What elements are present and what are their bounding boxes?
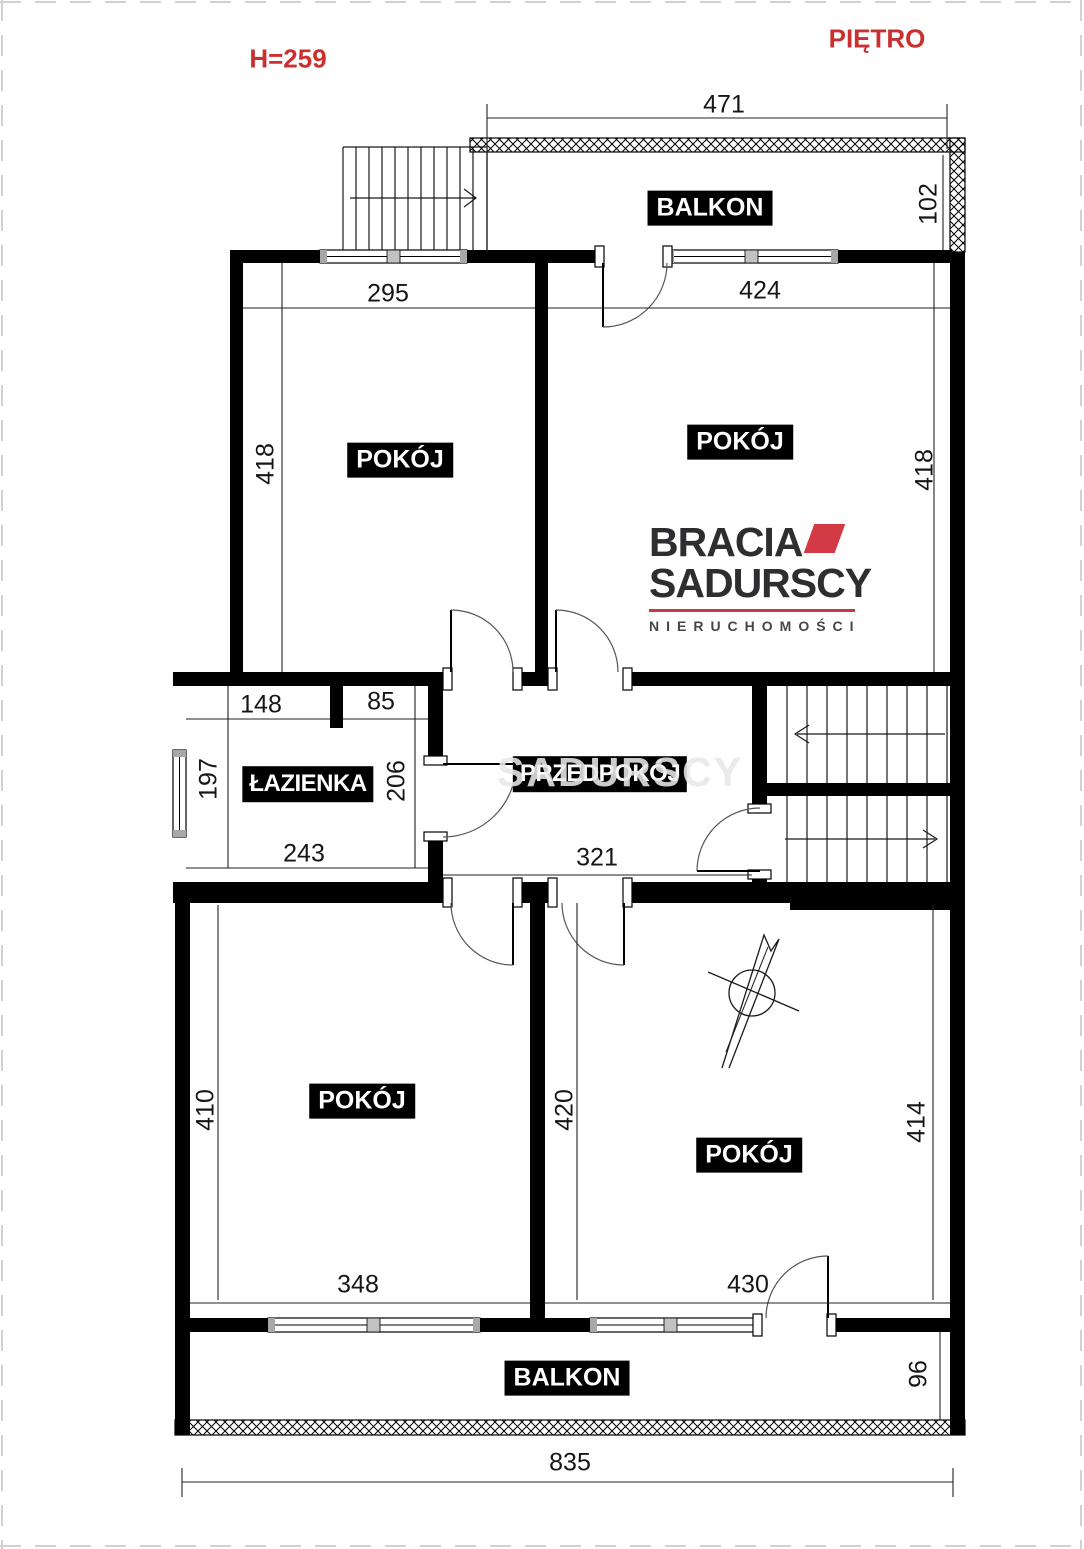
logo-parallelogram-icon (804, 524, 846, 553)
bathroom-label: ŁAZIENKA (242, 766, 373, 802)
dim-bath-width-left: 148 (240, 691, 282, 720)
dim-balcony-top-depth: 102 (915, 183, 944, 225)
room-bottom-right-label: POKÓJ (696, 1138, 802, 1173)
room-top-left-label: POKÓJ (347, 443, 453, 478)
dim-room-bl-height: 410 (192, 1089, 221, 1131)
dim-room-tr-width: 424 (739, 277, 781, 306)
room-bottom-left-label: POKÓJ (309, 1084, 415, 1119)
dim-room-bl-width: 348 (337, 1271, 379, 1300)
dim-total-width: 835 (549, 1449, 591, 1478)
logo-line2: SADURSCY (649, 563, 871, 604)
dim-bath-height-right: 206 (383, 760, 412, 802)
dim-balcony-top-width: 471 (703, 91, 745, 120)
ceiling-height-label: H=259 (249, 44, 326, 75)
logo-word-sadurscy: SADURSCY (649, 563, 871, 604)
logo-underline (649, 609, 855, 612)
dim-balcony-bottom-depth: 96 (905, 1360, 934, 1388)
dim-room-br-width: 430 (727, 1271, 769, 1300)
room-top-right-label: POKÓJ (687, 425, 793, 460)
balcony-top-label: BALKON (648, 191, 773, 226)
dim-room-tl-height: 418 (252, 443, 281, 485)
agency-logo: BRACIA SADURSCY NIERUCHOMOŚCI (649, 522, 871, 634)
dim-hall-width: 321 (576, 844, 618, 873)
dim-room-tl-width: 295 (367, 280, 409, 309)
dim-room-tr-height: 418 (911, 449, 940, 491)
logo-word-bracia: BRACIA (649, 522, 802, 563)
dim-room-br-height-right: 414 (903, 1101, 932, 1143)
logo-tagline: NIERUCHOMOŚCI (649, 618, 871, 634)
dim-bath-width-bottom: 243 (283, 840, 325, 869)
dim-bath-height-left: 197 (195, 758, 224, 800)
hallway-label: PRZEDPOKÓJ (513, 756, 687, 792)
floorplan-page: H=259 PIĘTRO BALKON POKÓJ POKÓJ ŁAZIENKA… (0, 0, 1084, 1549)
logo-line1: BRACIA (649, 522, 871, 563)
text-layer: H=259 PIĘTRO BALKON POKÓJ POKÓJ ŁAZIENKA… (0, 0, 1084, 1549)
dim-bath-width-right: 85 (367, 688, 395, 717)
balcony-bottom-label: BALKON (505, 1361, 630, 1396)
dim-room-br-height-left: 420 (551, 1089, 580, 1131)
floor-title: PIĘTRO (829, 24, 926, 55)
